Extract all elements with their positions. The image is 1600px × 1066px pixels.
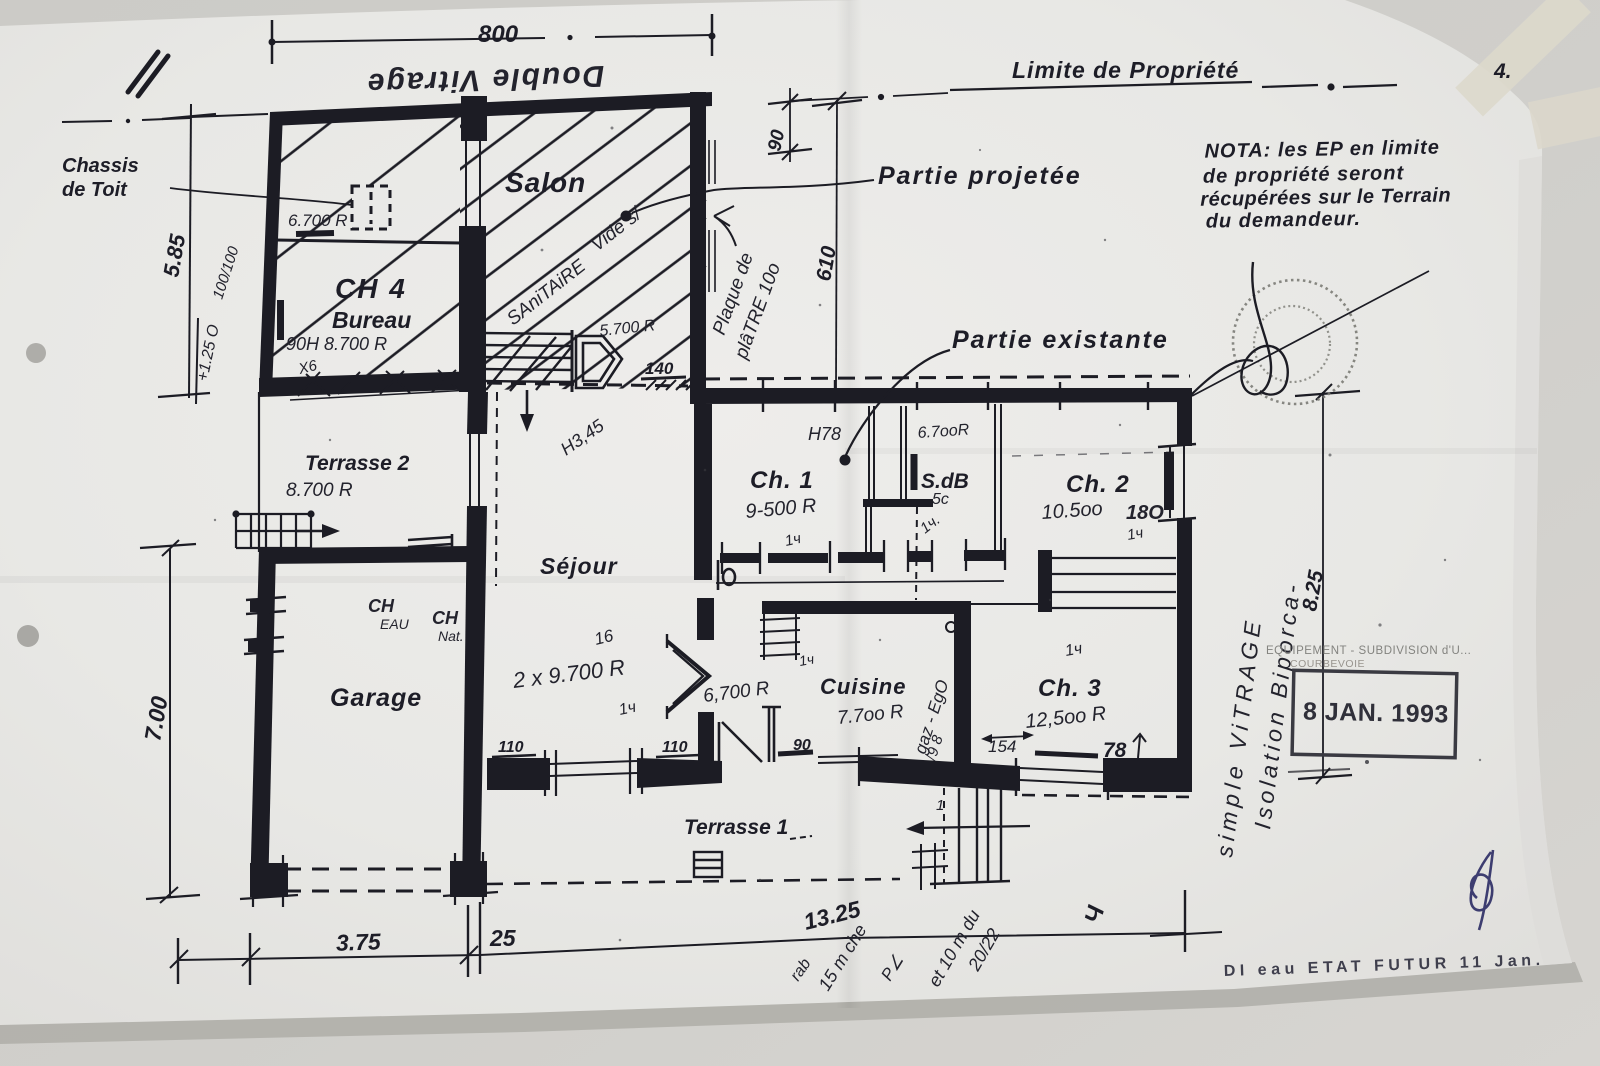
svg-text:6.7ooR: 6.7ooR <box>917 421 970 442</box>
svg-text:Partie existante: Partie existante <box>952 326 1169 354</box>
svg-text:récupérées sur le Terrain: récupérées sur le Terrain <box>1200 184 1451 210</box>
svg-text:H78: H78 <box>808 424 841 444</box>
svg-text:6.700 R: 6.700 R <box>288 211 348 230</box>
svg-text:Cuisine: Cuisine <box>820 674 906 699</box>
svg-text:8.700 R: 8.700 R <box>286 480 353 501</box>
svg-text:25: 25 <box>489 925 517 951</box>
svg-text:Garage: Garage <box>330 684 422 712</box>
svg-text:1ч: 1ч <box>1126 524 1145 544</box>
svg-text:de Toit: de Toit <box>62 179 128 201</box>
svg-text:Limite de Propriété: Limite de Propriété <box>1012 57 1239 83</box>
svg-text:1ч: 1ч <box>1064 640 1084 660</box>
svg-text:5c: 5c <box>932 491 949 508</box>
svg-text:Ch. 3: Ch. 3 <box>1038 675 1102 702</box>
svg-text:1ч: 1ч <box>798 651 816 669</box>
svg-text:1ч: 1ч <box>617 699 637 719</box>
svg-text:CH 4: CH 4 <box>335 273 407 304</box>
svg-text:Partie projetée: Partie projetée <box>878 162 1082 190</box>
svg-text:CH: CH <box>368 596 395 616</box>
svg-text:Nat.: Nat. <box>438 628 464 644</box>
svg-text:10.5oo: 10.5oo <box>1041 498 1104 524</box>
svg-text:140: 140 <box>645 359 674 378</box>
svg-text:1: 1 <box>936 797 944 814</box>
svg-text:Salon: Salon <box>505 167 586 198</box>
svg-text:Ch. 1: Ch. 1 <box>750 467 814 494</box>
svg-text:de propriété seront: de propriété seront <box>1203 162 1405 188</box>
svg-text:Chassis: Chassis <box>62 155 139 177</box>
svg-text:du demandeur.: du demandeur. <box>1206 208 1362 233</box>
svg-text:800: 800 <box>478 21 519 48</box>
svg-text:154: 154 <box>988 737 1016 756</box>
svg-text:Séjour: Séjour <box>540 553 618 579</box>
svg-text:90H 8.700 R: 90H 8.700 R <box>286 334 387 354</box>
svg-text:NOTA: les EP en limite: NOTA: les EP en limite <box>1204 137 1440 163</box>
svg-text:CH: CH <box>432 608 459 628</box>
svg-text:Bureau: Bureau <box>332 307 411 333</box>
svg-text:110: 110 <box>498 739 524 756</box>
svg-text:18O: 18O <box>1126 502 1164 524</box>
svg-text:EAU: EAU <box>380 616 410 632</box>
svg-text:S.dB: S.dB <box>921 470 969 493</box>
svg-text:EQUIPEMENT - SUBDIVISION d'U..: EQUIPEMENT - SUBDIVISION d'U... <box>1266 645 1471 657</box>
svg-text:Terrasse 1: Terrasse 1 <box>684 816 788 839</box>
svg-text:110: 110 <box>662 739 688 756</box>
svg-text:COURBEVOIE: COURBEVOIE <box>1290 658 1365 670</box>
svg-text:Ch. 2: Ch. 2 <box>1066 471 1130 498</box>
svg-text:3.75: 3.75 <box>335 928 382 956</box>
svg-text:Terrasse 2: Terrasse 2 <box>305 452 410 475</box>
svg-text:8 JAN. 1993: 8 JAN. 1993 <box>1303 697 1449 728</box>
svg-text:4.: 4. <box>1493 60 1512 83</box>
